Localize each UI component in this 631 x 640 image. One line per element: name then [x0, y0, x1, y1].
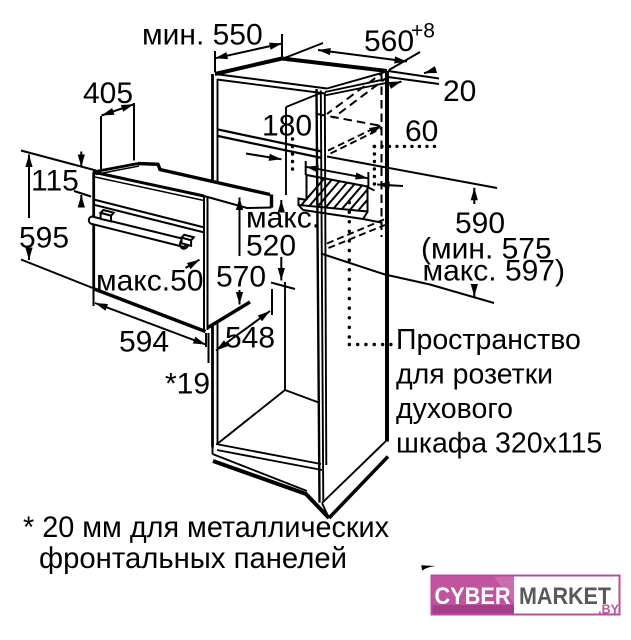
svg-text:для розетки: для розетки: [396, 359, 553, 391]
svg-text:Пространство: Пространство: [396, 324, 581, 356]
svg-text:.BY: .BY: [598, 603, 620, 617]
svg-text:*19: *19: [165, 368, 210, 401]
svg-text:595: 595: [19, 222, 69, 255]
svg-text:560: 560: [364, 25, 414, 58]
svg-text:180: 180: [262, 110, 312, 143]
svg-text:духового: духового: [396, 393, 513, 425]
svg-text:макс.50: макс.50: [96, 265, 203, 298]
svg-text:548: 548: [225, 322, 275, 355]
svg-text:405: 405: [83, 77, 133, 110]
svg-text:594: 594: [119, 326, 169, 359]
svg-text:570: 570: [216, 261, 266, 294]
svg-text:520: 520: [246, 230, 296, 263]
svg-text:* 20 мм для металлических: * 20 мм для металлических: [23, 511, 389, 544]
svg-text:20: 20: [443, 75, 476, 108]
svg-text:115: 115: [31, 165, 79, 198]
svg-text:макс. 597): макс. 597): [423, 255, 566, 288]
svg-text:CYBER: CYBER: [435, 583, 511, 610]
svg-text:мин. 550: мин. 550: [142, 19, 263, 52]
svg-text:шкафа 320x115: шкафа 320x115: [396, 428, 602, 460]
svg-text:+8: +8: [411, 20, 435, 43]
svg-text:фронтальных панелей: фронтальных панелей: [39, 542, 347, 575]
svg-text:60: 60: [405, 115, 438, 148]
